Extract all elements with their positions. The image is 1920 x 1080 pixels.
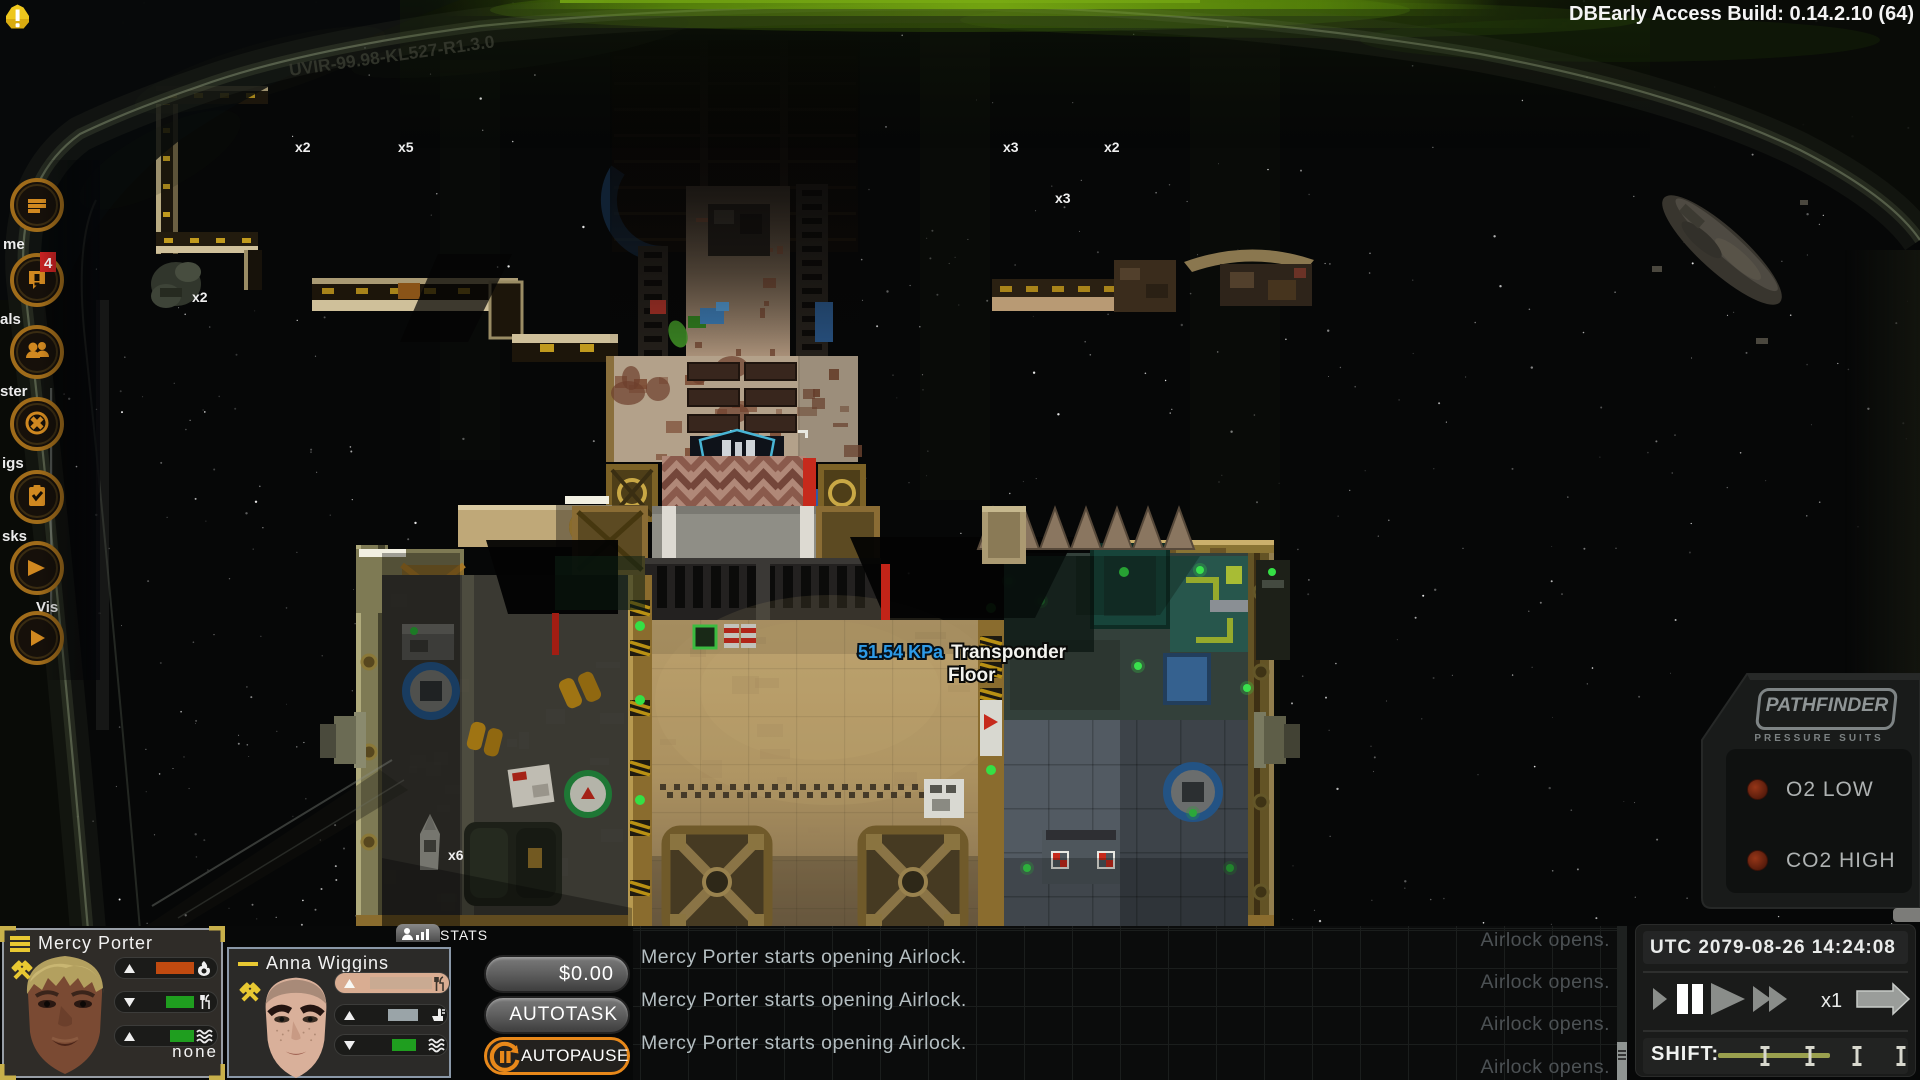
svg-text:DBEarly Access Build: 0.14.2.1: DBEarly Access Build: 0.14.2.10 (64) <box>1569 3 1914 25</box>
svg-text:ster: ster <box>0 383 28 400</box>
svg-text:x3: x3 <box>1055 190 1071 206</box>
svg-text:Transponder: Transponder <box>951 642 1067 663</box>
svg-text:Floor: Floor <box>948 665 996 686</box>
svg-text:x2: x2 <box>295 139 311 155</box>
svg-text:51.54 KPa: 51.54 KPa <box>858 642 944 662</box>
svg-text:x5: x5 <box>398 139 414 155</box>
svg-text:x2: x2 <box>192 289 208 305</box>
svg-text:igs: igs <box>2 455 24 472</box>
svg-text:x2: x2 <box>1104 139 1120 155</box>
svg-text:me: me <box>3 236 25 253</box>
svg-text:als: als <box>0 311 21 328</box>
svg-text:x6: x6 <box>448 847 464 863</box>
svg-text:x1: x1 <box>1821 990 1842 1012</box>
svg-text:x3: x3 <box>1003 139 1019 155</box>
svg-text:sks: sks <box>2 528 27 545</box>
